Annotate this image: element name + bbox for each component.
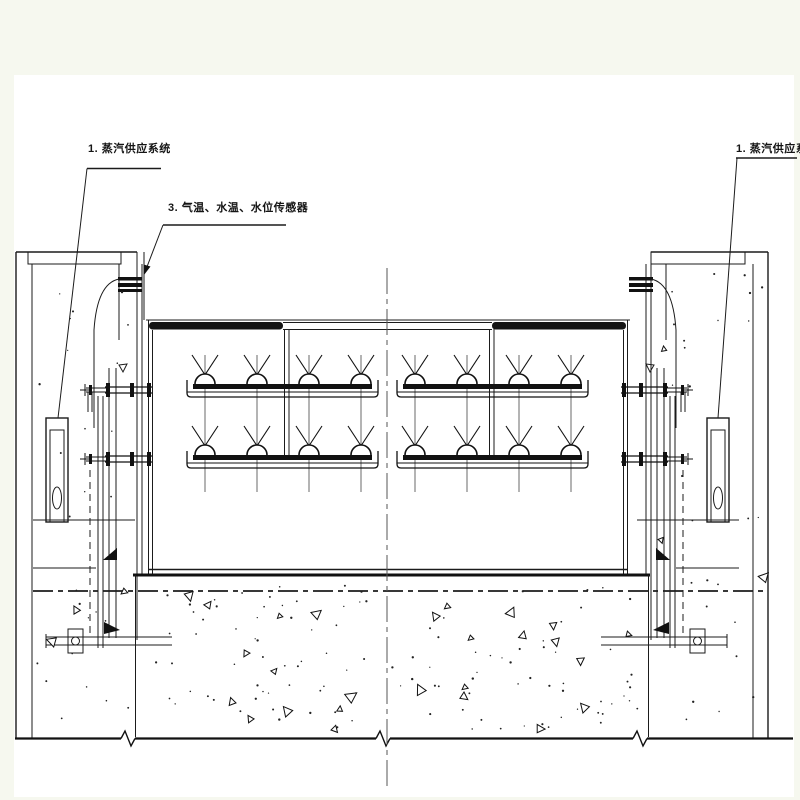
- gate-top-beam-left: [149, 322, 283, 330]
- label-sensors: 3. 气温、水温、水位传感器: [168, 200, 309, 214]
- left-pipe-flange-stack: [118, 277, 142, 292]
- gate-top-beam-right: [492, 322, 626, 330]
- label-steam-supply-right: 1. 蒸汽供应系统: [736, 141, 800, 155]
- label-steam-supply-left: 1. 蒸汽供应系统: [88, 141, 171, 155]
- right-pipe-flange-stack: [629, 277, 653, 292]
- paper: [14, 75, 794, 797]
- drawing-canvas: 1. 蒸汽供应系统 3. 气温、水温、水位传感器 1. 蒸汽供应系统: [0, 0, 800, 800]
- cad-drawing: 1. 蒸汽供应系统 3. 气温、水温、水位传感器 1. 蒸汽供应系统: [0, 0, 800, 800]
